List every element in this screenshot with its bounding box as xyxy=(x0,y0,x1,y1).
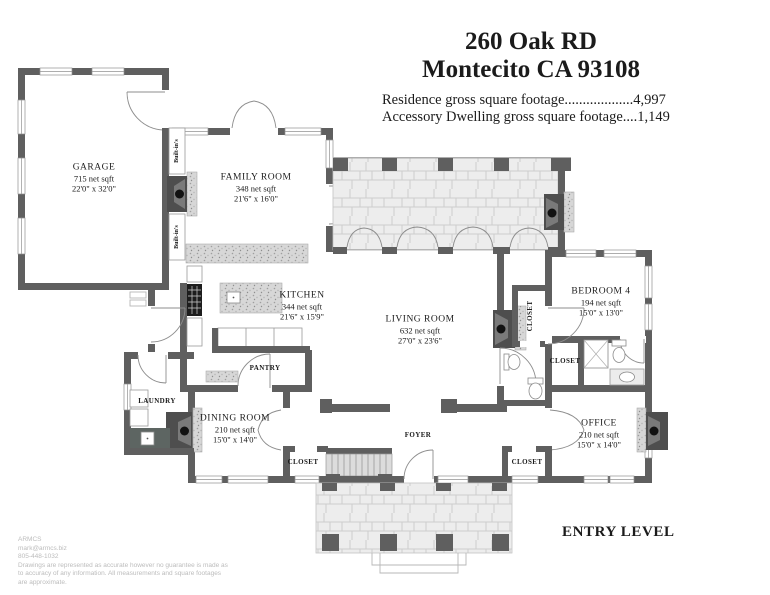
office-label: OFFICE 210 net sqft 15'0" x 14'0" xyxy=(577,418,621,449)
bedroom4-label: BEDROOM 4 194 net sqft 15'0" x 13'0" xyxy=(571,286,630,317)
garage-label: GARAGE 715 net sqft 22'0" x 32'0" xyxy=(72,162,116,193)
entry-level-label: ENTRY LEVEL xyxy=(562,524,675,541)
dining-room-label: DINING ROOM 210 net sqft 15'0" x 14'0" xyxy=(200,413,270,444)
pantry-counter xyxy=(206,371,238,382)
vanity-sink-icon xyxy=(610,369,644,385)
laundry-label: LAUNDRY xyxy=(138,397,176,405)
family-room-fireplace-icon xyxy=(167,172,197,216)
residence-footage: Residence gross square footage..........… xyxy=(382,92,692,109)
front-door xyxy=(404,476,434,483)
drafter-info: ARMCS mark@armcs.biz 805-448-1032 Drawin… xyxy=(18,536,232,587)
office-fireplace-icon xyxy=(637,408,668,452)
address-line1: 260 Oak RD xyxy=(370,28,692,56)
disclaimer-text: Drawings are represented as accurate how… xyxy=(18,562,232,588)
foyer-label: FOYER xyxy=(405,431,432,439)
drafter-email: mark@armcs.biz xyxy=(18,545,232,554)
built-ins-label-lower: Built-in's xyxy=(174,225,180,249)
address-line2: Montecito CA 93108 xyxy=(370,56,692,84)
family-room-label: FAMILY ROOM 348 net sqft 21'6" x 16'0" xyxy=(221,172,292,203)
powder-sink-icon xyxy=(504,354,520,370)
washer-dryer-icon xyxy=(130,390,148,426)
patio-terrace xyxy=(333,157,574,250)
title-block: 260 Oak RD Montecito CA 93108 Residence … xyxy=(370,28,692,126)
kitchen-counter xyxy=(186,244,308,263)
range-icon xyxy=(187,284,202,316)
foyer-area xyxy=(283,399,552,482)
living-room-label: LIVING ROOM 632 net sqft 27'0" x 23'6" xyxy=(385,314,454,345)
front-porch xyxy=(316,483,512,573)
closet-label-bedroom: CLOSET xyxy=(526,301,534,332)
closet-label-foyer-right: CLOSET xyxy=(512,458,543,466)
pantry-label: PANTRY xyxy=(250,364,281,372)
drafter-phone: 805-448-1032 xyxy=(18,553,232,562)
entry-steps xyxy=(372,553,466,573)
closet-label-bath: CLOSET xyxy=(550,357,581,365)
outdoor-fireplace-icon xyxy=(544,192,574,232)
drafter-company: ARMCS xyxy=(18,536,232,545)
kitchen-island xyxy=(220,283,282,313)
dining-fireplace-icon xyxy=(166,408,202,452)
adu-footage: Accessory Dwelling gross square footage.… xyxy=(382,109,692,126)
toilet-icon xyxy=(612,340,626,363)
built-ins-label-upper: Built-in's xyxy=(174,139,180,163)
laundry-sink-icon xyxy=(130,428,170,448)
kitchen-label: KITCHEN 344 net sqft 21'6" x 15'9" xyxy=(279,290,324,321)
floor-plan-page: 260 Oak RD Montecito CA 93108 Residence … xyxy=(0,0,770,595)
powder-toilet-icon xyxy=(528,378,543,399)
shower-icon xyxy=(584,340,608,368)
front-wall xyxy=(188,450,652,483)
bathroom-fixtures xyxy=(584,340,644,385)
closet-label-foyer-left: CLOSET xyxy=(288,458,319,466)
